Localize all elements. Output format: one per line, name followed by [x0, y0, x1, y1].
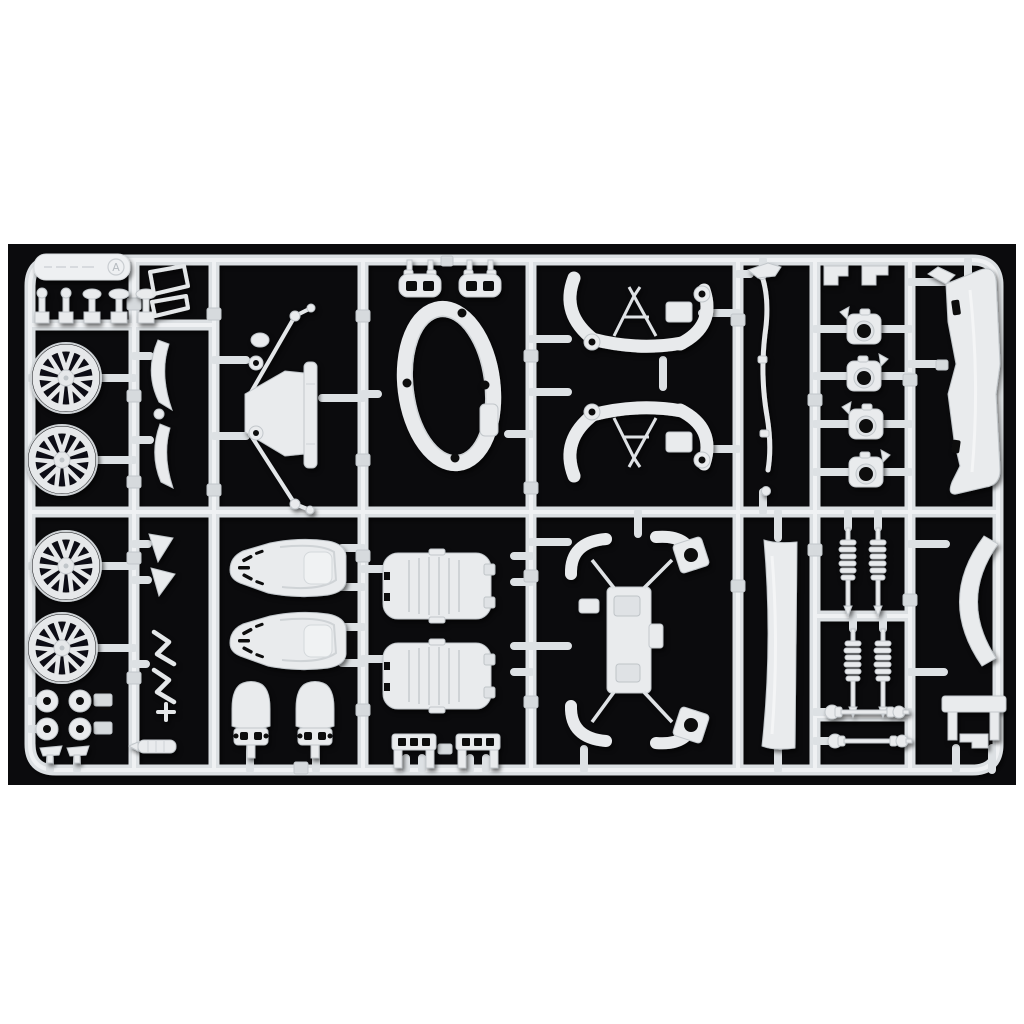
wheel-arch-trim-part	[959, 536, 998, 666]
sprue-photo: A	[8, 244, 1016, 785]
linkage-rod-part	[758, 271, 771, 496]
cockpit-ring-part	[396, 303, 502, 469]
headrest-part-1	[232, 682, 270, 759]
front-bumper-part	[928, 267, 1000, 494]
bucket-seat-part-1	[230, 539, 346, 596]
bucket-seat-part-2	[230, 612, 346, 669]
suspension-cross-frame-rear	[570, 404, 710, 476]
coil-spring-damper-1	[839, 528, 856, 616]
wiper-arm-parts	[154, 632, 174, 720]
wheel-part-4	[27, 613, 97, 683]
sprue-label-plate: A	[34, 254, 130, 280]
hub-ring-parts	[36, 690, 91, 740]
sprue-letter: A	[112, 261, 120, 274]
rocker-panel-part	[762, 540, 797, 749]
coil-spring-damper-2	[869, 528, 886, 616]
wheel-part-1	[31, 343, 101, 413]
suspension-cross-frame-front	[570, 278, 710, 350]
wheel-part-2	[27, 425, 97, 495]
rear-axle-chassis-assembly	[571, 536, 710, 744]
clamp-bracket-part-1	[399, 260, 441, 297]
bulkhead-frame-part	[245, 304, 317, 514]
pedal-unit-part-1	[392, 734, 436, 768]
drive-shaft-part-2	[828, 734, 912, 748]
coil-spring-damper-4	[874, 629, 891, 717]
seat-cushion-part-1	[383, 549, 495, 623]
clamp-bracket-part-2	[459, 260, 501, 297]
wheel-part-3	[31, 531, 101, 601]
mounting-bench-bracket-part	[942, 696, 1006, 748]
air-funnel-parts	[149, 534, 175, 596]
headrest-part-2	[296, 682, 334, 759]
angle-bracket-parts	[824, 266, 888, 285]
product-photo-page: A	[0, 0, 1024, 1024]
exhaust-tip-blade-parts	[151, 340, 173, 488]
sprue-illustration: A	[8, 244, 1016, 785]
coil-spring-damper-3	[844, 629, 861, 717]
foot-pad-parts	[40, 746, 89, 763]
window-frame-wire-parts	[150, 266, 188, 316]
pedal-unit-part-2	[456, 734, 500, 768]
seat-cushion-part-2	[383, 639, 495, 713]
